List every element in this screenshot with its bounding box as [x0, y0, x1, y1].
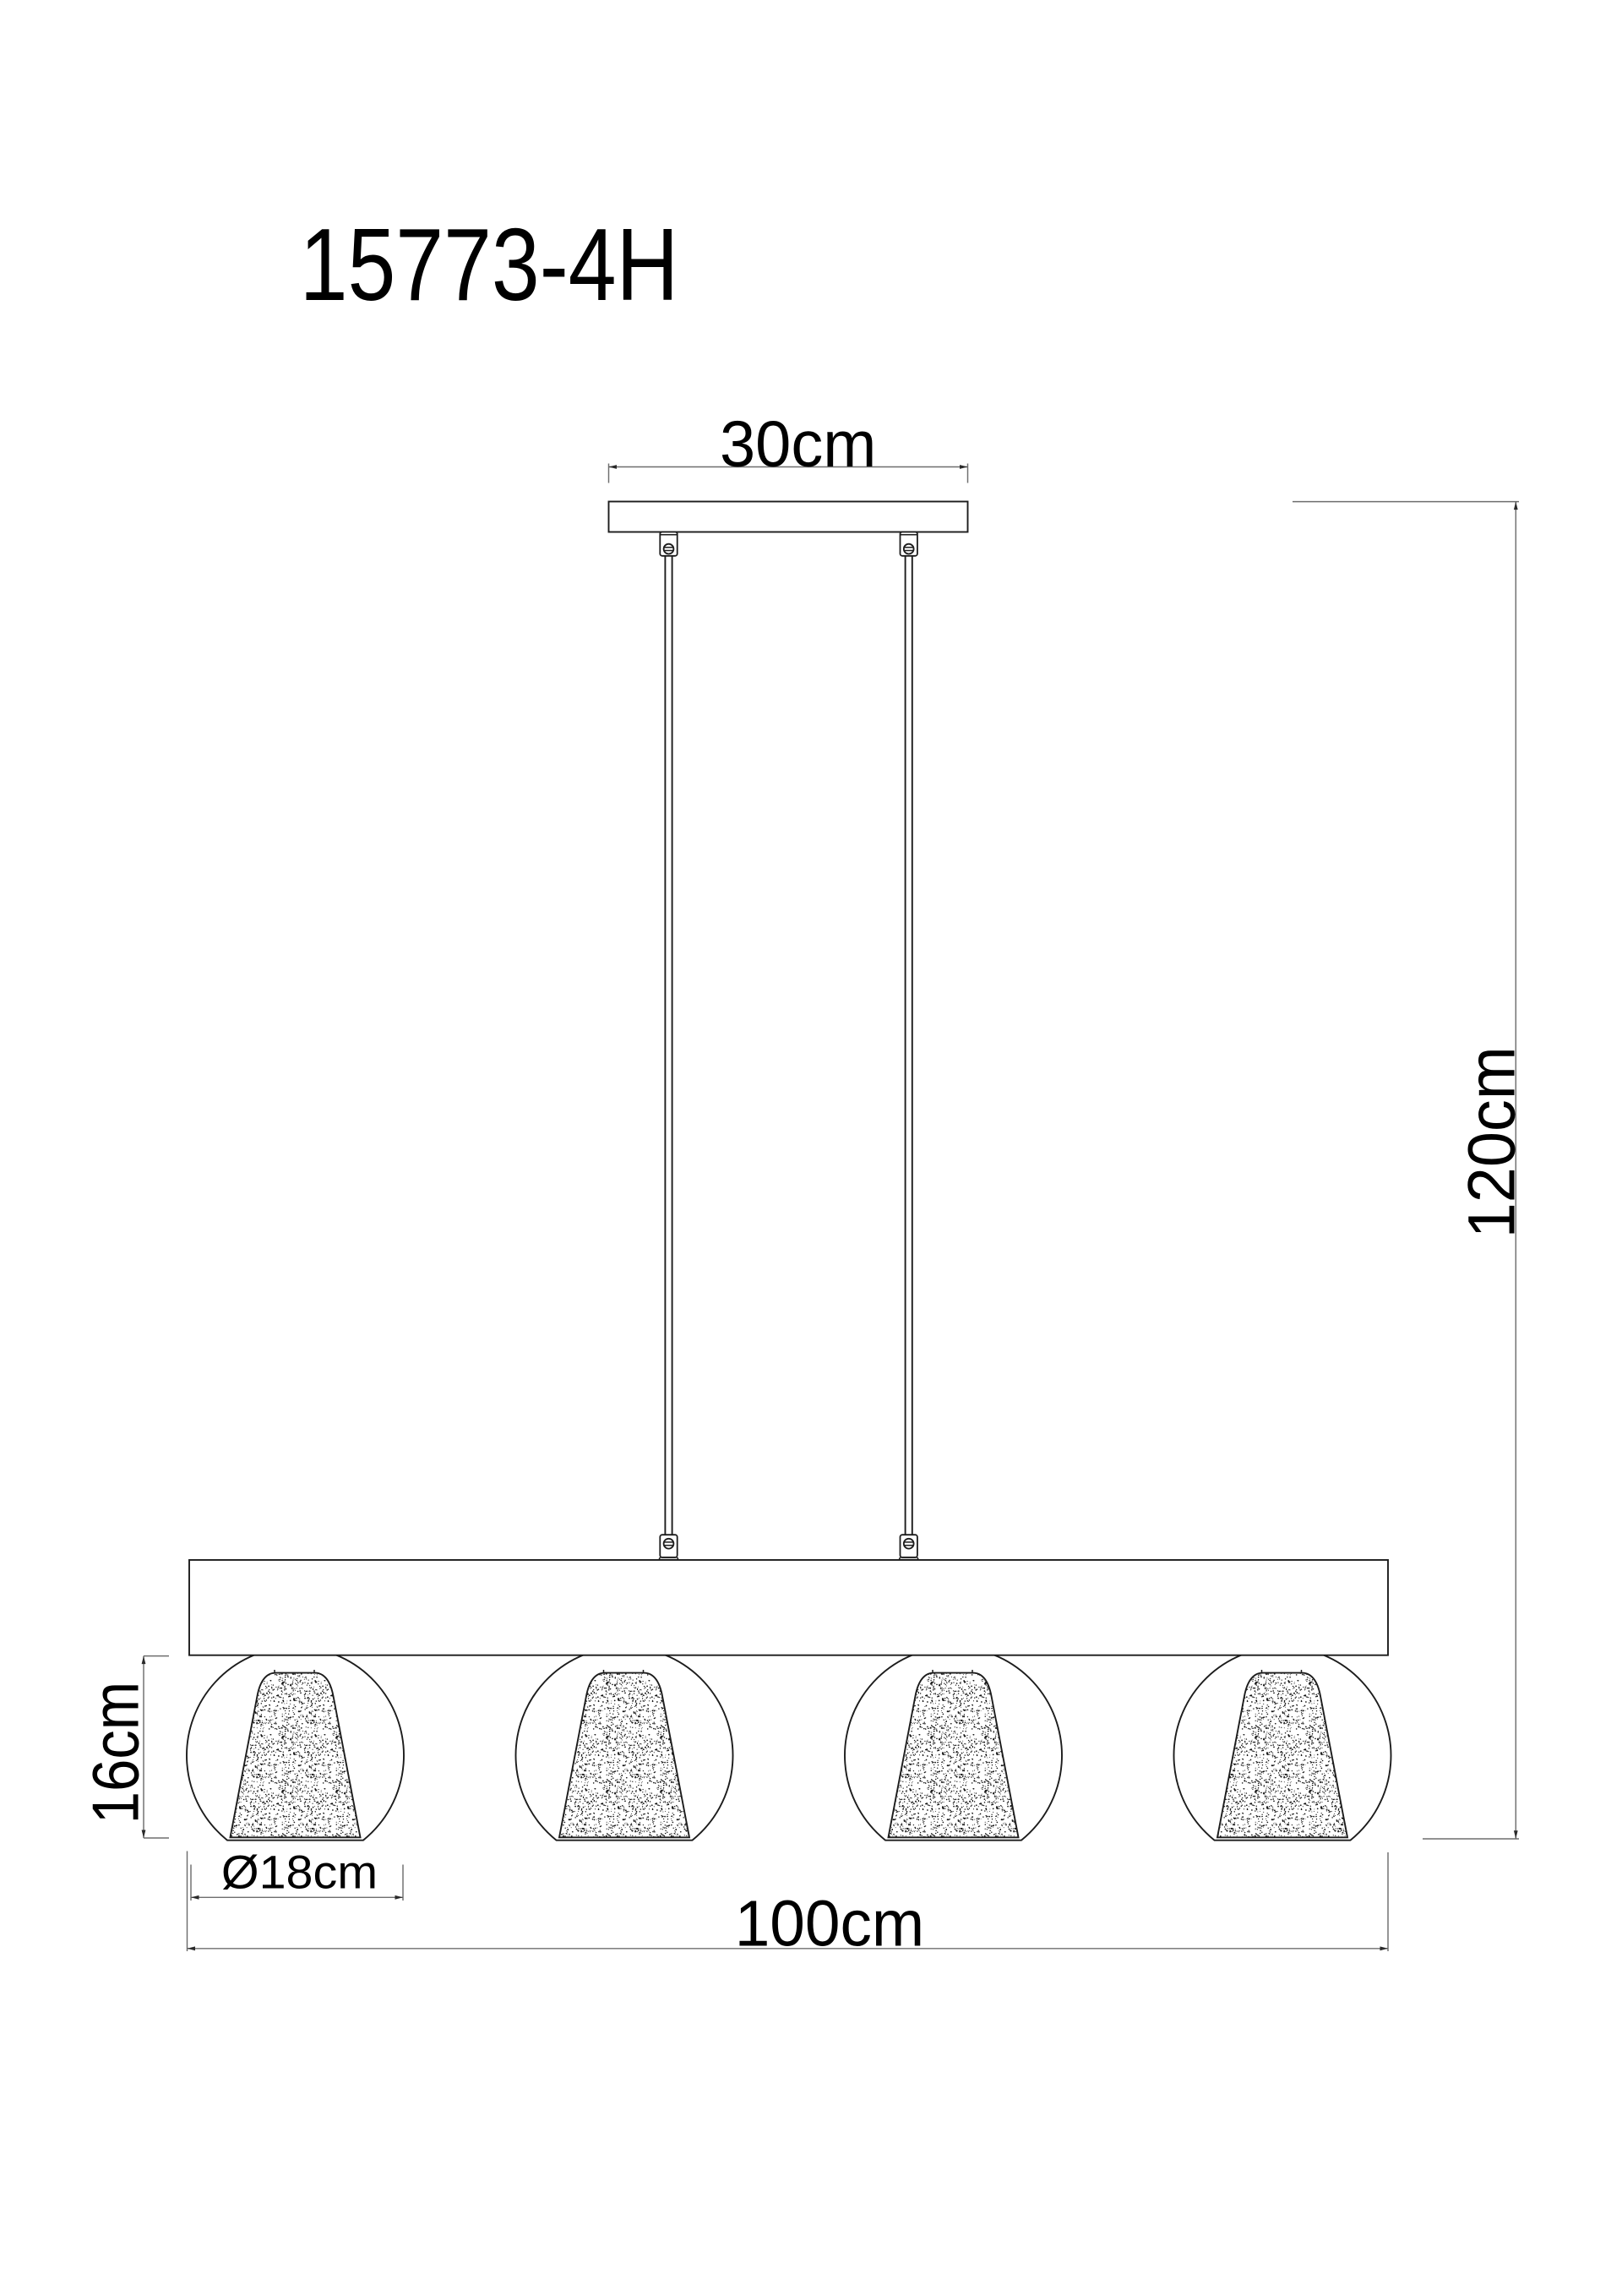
svg-text:30cm: 30cm — [720, 408, 876, 481]
svg-text:100cm: 100cm — [735, 1887, 924, 1960]
svg-text:16cm: 16cm — [80, 1682, 153, 1824]
svg-text:15773-4H: 15773-4H — [300, 207, 679, 322]
svg-text:120cm: 120cm — [1454, 1046, 1529, 1238]
svg-text:Ø18cm: Ø18cm — [221, 1846, 378, 1899]
